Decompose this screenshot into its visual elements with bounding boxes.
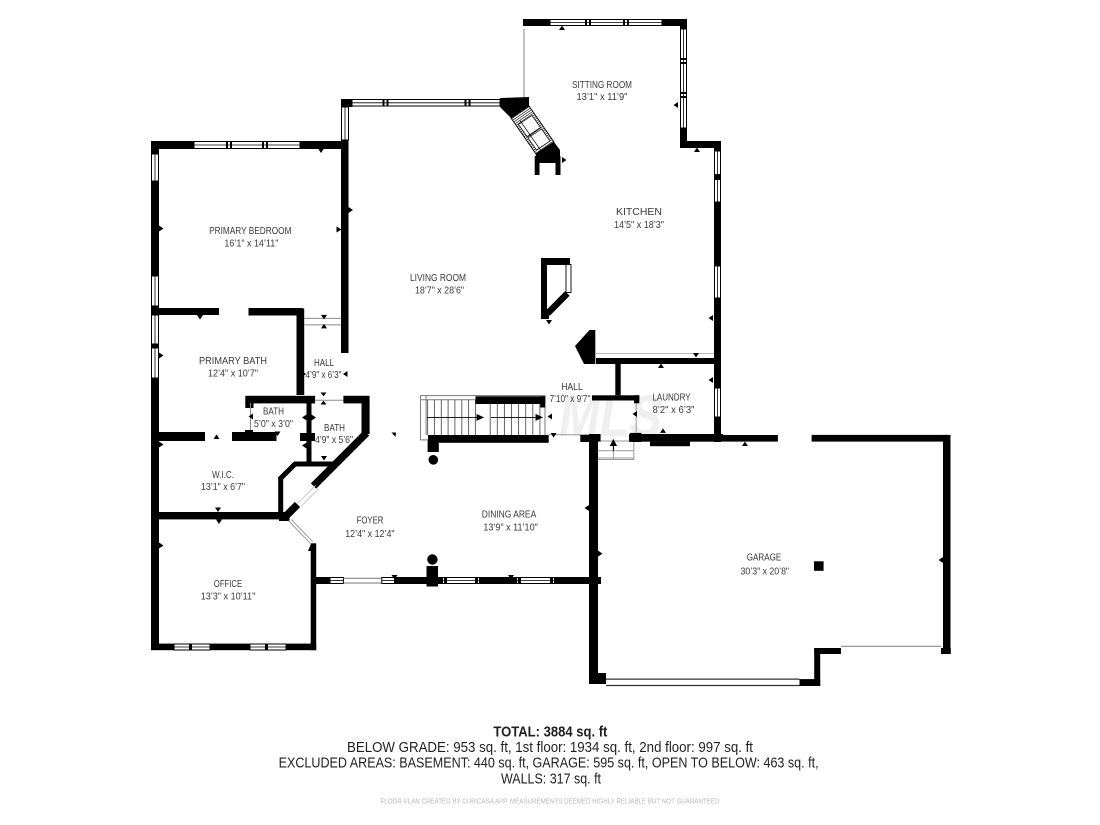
svg-text:8’2" x 6’3": 8’2" x 6’3" (653, 404, 695, 416)
svg-text:13’3" x 10’11": 13’3" x 10’11" (201, 591, 256, 603)
svg-text:KITCHEN: KITCHEN (616, 206, 662, 218)
svg-text:14’5" x 18’3": 14’5" x 18’3" (614, 219, 664, 231)
svg-text:EXCLUDED AREAS: BASEMENT: 440: EXCLUDED AREAS: BASEMENT: 440 sq. ft, GA… (279, 755, 819, 772)
svg-text:16’1" x 14’11": 16’1" x 14’11" (224, 238, 278, 250)
svg-text:13’9" x 11’10": 13’9" x 11’10" (483, 522, 538, 534)
svg-text:OFFICE: OFFICE (214, 578, 242, 590)
svg-text:4’9" x 6’3": 4’9" x 6’3" (306, 369, 342, 381)
svg-text:30’3" x 20’8": 30’3" x 20’8" (741, 566, 790, 578)
svg-text:7’10" x 9’7": 7’10" x 9’7" (550, 393, 591, 405)
svg-text:BATH: BATH (324, 422, 345, 434)
svg-text:HALL: HALL (314, 357, 334, 369)
svg-text:DINING AREA: DINING AREA (482, 509, 536, 521)
svg-text:PRIMARY BEDROOM: PRIMARY BEDROOM (209, 225, 291, 237)
svg-text:FLOOR PLAN CREATED BY CUBICASA: FLOOR PLAN CREATED BY CUBICASA APP. MEAS… (381, 797, 720, 806)
svg-text:13’1" x 6’7": 13’1" x 6’7" (201, 481, 245, 493)
svg-text:SITTING ROOM: SITTING ROOM (572, 79, 632, 91)
svg-text:W.I.C.: W.I.C. (212, 469, 234, 481)
svg-text:WALLS: 317 sq. ft: WALLS: 317 sq. ft (501, 771, 602, 788)
svg-text:BATH: BATH (263, 406, 284, 418)
svg-text:12’4" x 12’4": 12’4" x 12’4" (345, 528, 395, 540)
svg-text:PRIMARY BATH: PRIMARY BATH (199, 355, 267, 367)
svg-text:LIVING ROOM: LIVING ROOM (410, 272, 466, 284)
svg-text:18’7" x 28’6": 18’7" x 28’6" (415, 285, 464, 297)
svg-text:5’0" x 3’0": 5’0" x 3’0" (254, 418, 293, 430)
svg-text:13’1" x 11’9": 13’1" x 11’9" (577, 91, 628, 103)
svg-text:FOYER: FOYER (357, 515, 384, 527)
svg-text:4’9" x 5’6": 4’9" x 5’6" (315, 434, 353, 446)
svg-text:12’4" x 10’7": 12’4" x 10’7" (208, 368, 258, 380)
svg-text:BELOW GRADE: 953 sq. ft, 1st f: BELOW GRADE: 953 sq. ft, 1st floor: 1934… (347, 739, 754, 756)
svg-text:TOTAL: 3884 sq. ft: TOTAL: 3884 sq. ft (493, 724, 607, 741)
svg-text:LAUNDRY: LAUNDRY (652, 392, 690, 404)
svg-text:GARAGE: GARAGE (747, 552, 781, 564)
svg-text:HALL: HALL (561, 381, 583, 393)
